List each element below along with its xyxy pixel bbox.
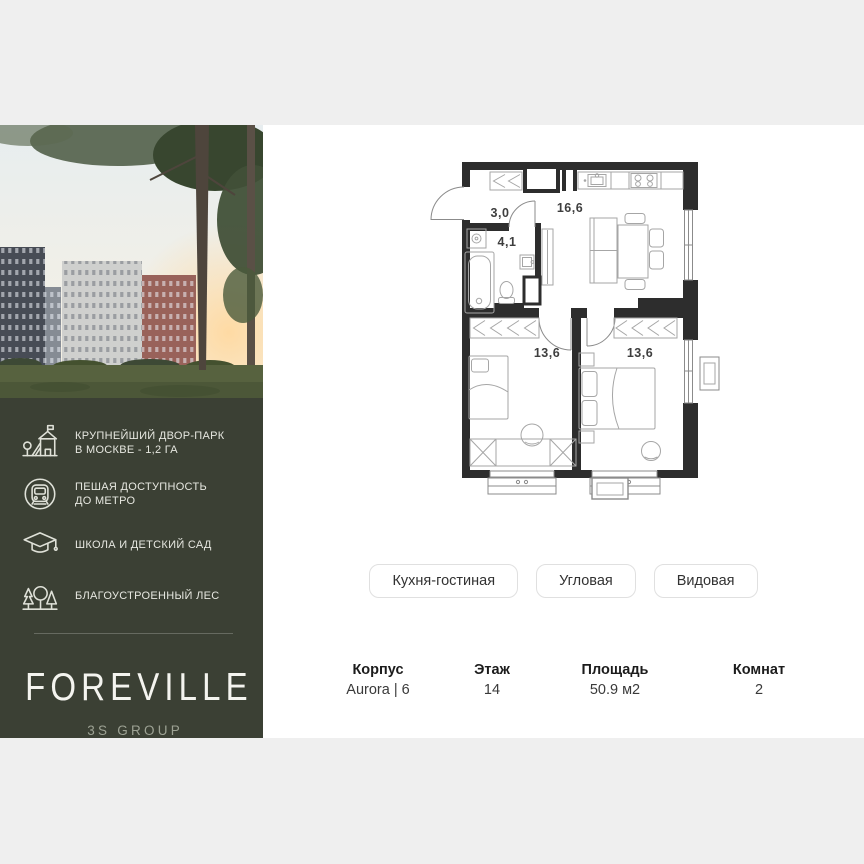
- grass: [0, 365, 263, 398]
- kitchen-counter: [578, 172, 683, 189]
- feature-text: ШКОЛА И ДЕТСКИЙ САД: [75, 538, 212, 552]
- bed-left: [469, 356, 508, 419]
- sink-icon: [588, 174, 606, 187]
- wardrobe-bedroom-left: [470, 318, 539, 338]
- window-right-kitchen: [685, 210, 693, 280]
- balcony-basket: [592, 478, 628, 499]
- metro-icon: [20, 474, 60, 514]
- window-bottom-left: [488, 471, 556, 494]
- feature-text: БЛАГОУСТРОЕННЫЙ ЛЕС: [75, 589, 220, 603]
- floor-plan: 3,0 16,6 4,1 13,6 13,6: [425, 150, 745, 510]
- brand-divider: [34, 633, 233, 634]
- pine-trunk-2: [247, 125, 255, 365]
- feature-park: КРУПНЕЙШИЙ ДВОР-ПАРК В МОСКВЕ - 1,2 ГА: [20, 423, 247, 463]
- chair-right: [642, 442, 661, 461]
- room-area-bedroom-left: 13,6: [534, 346, 560, 360]
- detail-rooms: Комнат 2: [733, 662, 785, 698]
- letterbox-bottom: [0, 738, 864, 864]
- feature-school: ШКОЛА И ДЕТСКИЙ САД: [20, 525, 247, 565]
- dining-table: [618, 214, 664, 290]
- bed-right: [579, 368, 655, 429]
- room-area-bedroom-right: 13,6: [627, 346, 653, 360]
- duct-shaft: [525, 167, 558, 191]
- detail-value: 2: [733, 682, 785, 698]
- brand-group: 3S GROUP: [20, 723, 247, 738]
- feature-metro: ПЕШАЯ ДОСТУПНОСТЬ ДО МЕТРО: [20, 474, 247, 514]
- ac-unit: [700, 357, 719, 390]
- room-area-bathroom: 4,1: [498, 235, 517, 249]
- school-icon: [20, 525, 60, 565]
- tag-corner: Угловая: [536, 564, 636, 598]
- feature-forest: БЛАГОУСТРОЕННЫЙ ЛЕС: [20, 576, 247, 616]
- tall-cabinet: [542, 229, 553, 285]
- detail-value: 14: [474, 682, 510, 698]
- detail-label: Корпус: [346, 662, 409, 678]
- playground-icon: [20, 423, 60, 463]
- room-area-kitchen-living: 16,6: [557, 201, 583, 215]
- room-area-hallway: 3,0: [491, 206, 510, 220]
- bathroom-shaft: [524, 277, 540, 304]
- hero-photo: [0, 125, 263, 398]
- stove-icon: [631, 174, 657, 188]
- detail-area: Площадь 50.9 м2: [582, 662, 649, 698]
- wardrobe-bedroom-right: [614, 318, 677, 338]
- sofa: [590, 218, 617, 283]
- wardrobe-hallway: [490, 172, 522, 190]
- forest-icon: [20, 576, 60, 616]
- detail-floor: Этаж 14: [474, 662, 510, 698]
- detail-value: 50.9 м2: [582, 682, 649, 698]
- detail-building: Корпус Aurora | 6: [346, 662, 409, 698]
- entry-door-arc: [431, 187, 464, 220]
- toilet: [499, 282, 515, 304]
- feature-text: КРУПНЕЙШИЙ ДВОР-ПАРК В МОСКВЕ - 1,2 ГА: [75, 429, 225, 458]
- feature-text: ПЕШАЯ ДОСТУПНОСТЬ ДО МЕТРО: [75, 480, 207, 509]
- tag-view: Видовая: [654, 564, 758, 598]
- detail-label: Комнат: [733, 662, 785, 678]
- letterbox-top: [0, 0, 864, 125]
- bathroom-sink: [520, 255, 534, 269]
- chair-left: [521, 424, 543, 446]
- detail-value: Aurora | 6: [346, 682, 409, 698]
- wardrobe-bottom-left: [470, 439, 576, 466]
- bathroom-door-arc: [509, 201, 535, 227]
- listing-card: КРУПНЕЙШИЙ ДВОР-ПАРК В МОСКВЕ - 1,2 ГА П…: [0, 0, 864, 864]
- tag-kitchen-living: Кухня-гостиная: [369, 564, 518, 598]
- bedroom-right-door-arc: [587, 318, 615, 346]
- detail-label: Этаж: [474, 662, 510, 678]
- detail-label: Площадь: [582, 662, 649, 678]
- brand-panel: КРУПНЕЙШИЙ ДВОР-ПАРК В МОСКВЕ - 1,2 ГА П…: [0, 398, 263, 738]
- window-right-bedroom: [685, 340, 693, 403]
- feature-tags: Кухня-гостиная Угловая Видовая: [283, 564, 844, 598]
- brand-logo: FOREVILLE: [20, 665, 247, 710]
